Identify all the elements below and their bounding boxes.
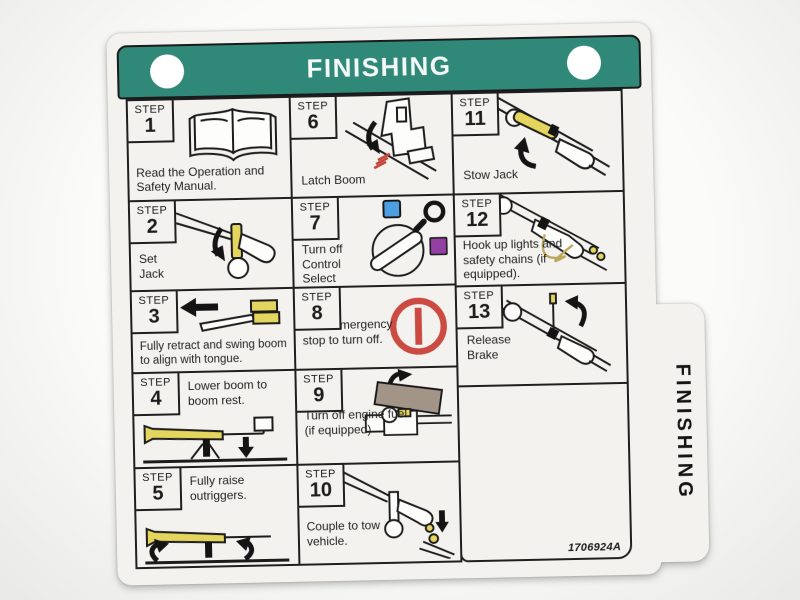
step-7-text: Turn off Control Select [302,242,357,287]
step-10-box: STEP 10 [296,463,345,508]
step-13-text: Release Brake [467,332,528,363]
step-11-box: STEP 11 [451,92,500,137]
step-10-cell: STEP 10 Couple to tow vehicle. [296,460,462,565]
step-1-box: STEP 1 [126,98,175,143]
step-3-cell: STEP 3 Fully retract and swing boom to a… [130,287,297,374]
step-1-number: 1 [144,116,156,137]
step-4-box: STEP 4 [131,371,180,416]
step-5-number: 5 [152,484,164,505]
lower-boom-icon [138,411,291,466]
part-number: 1706924A [568,541,621,554]
step-13-cell: STEP 13 Release Brake [455,282,629,388]
step-1-cell: STEP 1 Read the Operation and Safety Man… [126,96,293,202]
step-8-number: 8 [311,303,323,324]
raise-outriggers-icon [140,510,293,567]
header-title: FINISHING [306,50,452,84]
step-13-number: 13 [468,302,491,323]
step-8-box: STEP 8 [293,286,342,331]
step-4-number: 4 [150,389,162,410]
step-7-number: 7 [310,213,322,234]
set-jack-icon [174,201,288,287]
control-select-switch-icon [353,196,457,284]
step-7-cell: STEP 7 Turn off Control Select [291,193,457,288]
step-11-text: Stow Jack [463,167,518,183]
step-12-box: STEP 12 [453,192,502,237]
step-12-text: Hook up lights and safety chains (if equ… [463,236,578,282]
finishing-label: FINISHING FINISHING STEP 1 Read the Oper… [106,21,717,585]
step-2-cell: STEP 2 Set Jack [128,197,295,292]
step-3-number: 3 [148,307,160,328]
step-12-cell: STEP 12 Hook up lights and safety chains… [453,190,627,288]
step-6-box: STEP 6 [289,95,338,140]
step-4-text: Lower boom to boom rest. [188,377,281,408]
step-1-text: Read the Operation and Safety Manual. [136,163,283,195]
step-6-cell: STEP 6 Latch Boom [289,92,455,198]
step-9-number: 9 [313,385,325,406]
step-5-text: Fully raise outriggers. [190,472,267,503]
step-4-cell: STEP 4 Lower boom to boom rest. [131,369,298,469]
step-5-cell: STEP 5 Fully raise outriggers. [133,464,300,569]
step-6-number: 6 [307,112,319,133]
open-book-icon [184,100,283,168]
step-2-text: Set Jack [139,251,178,281]
step-7-box: STEP 7 [291,196,340,241]
step-6-text: Latch Boom [301,173,365,189]
side-tab-title: FINISHING [670,364,696,502]
part-number-cell: 1706924A [457,382,633,563]
step-13-box: STEP 13 [455,284,504,329]
step-2-number: 2 [147,217,159,238]
step-11-cell: STEP 11 Stow Jack [451,89,625,196]
step-9-cell: STEP 9 Turn off engine fuel (if equipped… [294,365,460,465]
retract-swing-boom-icon [172,293,285,337]
step-8-cell: STEP 8 Push emergency stop to turn off. [293,283,459,370]
step-12-number: 12 [466,210,489,231]
step-5-box: STEP 5 [133,466,182,511]
step-11-number: 11 [464,109,486,130]
step-10-number: 10 [310,480,333,501]
step-10-text: Couple to tow vehicle. [306,518,401,549]
step-3-text: Fully retract and swing boom to align wi… [140,337,297,368]
step-2-box: STEP 2 [128,199,177,244]
label-body: FINISHING STEP 1 Read the Operation and … [106,22,661,585]
step-3-box: STEP 3 [130,289,179,334]
step-9-box: STEP 9 [294,368,343,413]
